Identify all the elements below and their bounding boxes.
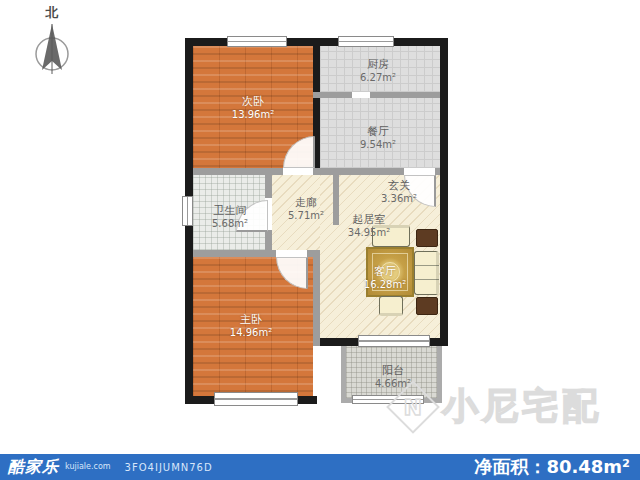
room-label-living-area: 起居室 34.95m²: [348, 213, 390, 239]
window-master-bay: [214, 392, 298, 406]
plan-code: 3FO4IJUMN76D: [125, 462, 213, 473]
wall-corridor-living: [333, 175, 339, 225]
net-area: 净面积：80.48m²: [474, 455, 630, 479]
net-area-label: 净面积：: [474, 456, 546, 477]
room-label-entrance: 玄关 3.36m²: [381, 179, 417, 205]
room-label-bathroom: 卫生间 5.68m²: [212, 204, 248, 230]
room-label-second-bedroom: 次卧 13.96m²: [232, 95, 274, 121]
room-label-corridor: 走廊 5.71m²: [288, 196, 324, 222]
room-label-master-bedroom: 主卧 14.96m²: [230, 313, 272, 339]
wall-balcony-right: [437, 346, 442, 403]
wall-kitchen-dining: [313, 92, 440, 98]
wall-master-living: [313, 250, 320, 346]
room-label-balcony: 阳台 4.66m²: [375, 364, 411, 390]
side-table-top: [416, 229, 438, 247]
window-kitchen: [338, 36, 394, 47]
three-seat-sofa: [414, 251, 439, 295]
opening-master-door: [276, 250, 307, 257]
opening-bedroom-door: [283, 168, 314, 175]
opening-entry-door: [404, 168, 435, 175]
opening-kitchen: [352, 92, 370, 98]
wall-right: [440, 38, 448, 346]
side-table-bottom: [416, 297, 438, 315]
footer-bar: 酷家乐 kujiale.com 3FO4IJUMN76D 净面积：80.48m²: [0, 454, 640, 480]
floor-plan: 次卧 13.96m² 厨房 6.27m² 餐厅 9.54m² 卫生间 5.68m…: [0, 0, 640, 454]
wall-balcony-left: [341, 346, 346, 403]
window-living-slider: [358, 335, 430, 347]
room-label-living-room: 客厅 16.28m²: [364, 265, 406, 291]
armchair: [379, 296, 403, 316]
brand-site: kujiale.com: [65, 463, 111, 472]
window-second-bedroom: [227, 36, 287, 47]
brand-site-wrap: kujiale.com: [65, 463, 111, 472]
watermark-text: 小尼宅配: [442, 382, 602, 431]
room-label-dining: 餐厅 9.54m²: [360, 125, 396, 151]
window-balcony: [352, 395, 424, 404]
room-label-kitchen: 厨房 6.27m²: [360, 58, 396, 84]
brand-logo: 酷家乐: [8, 457, 59, 478]
window-bathroom: [182, 196, 193, 226]
net-area-value: 80.48m²: [546, 456, 630, 477]
